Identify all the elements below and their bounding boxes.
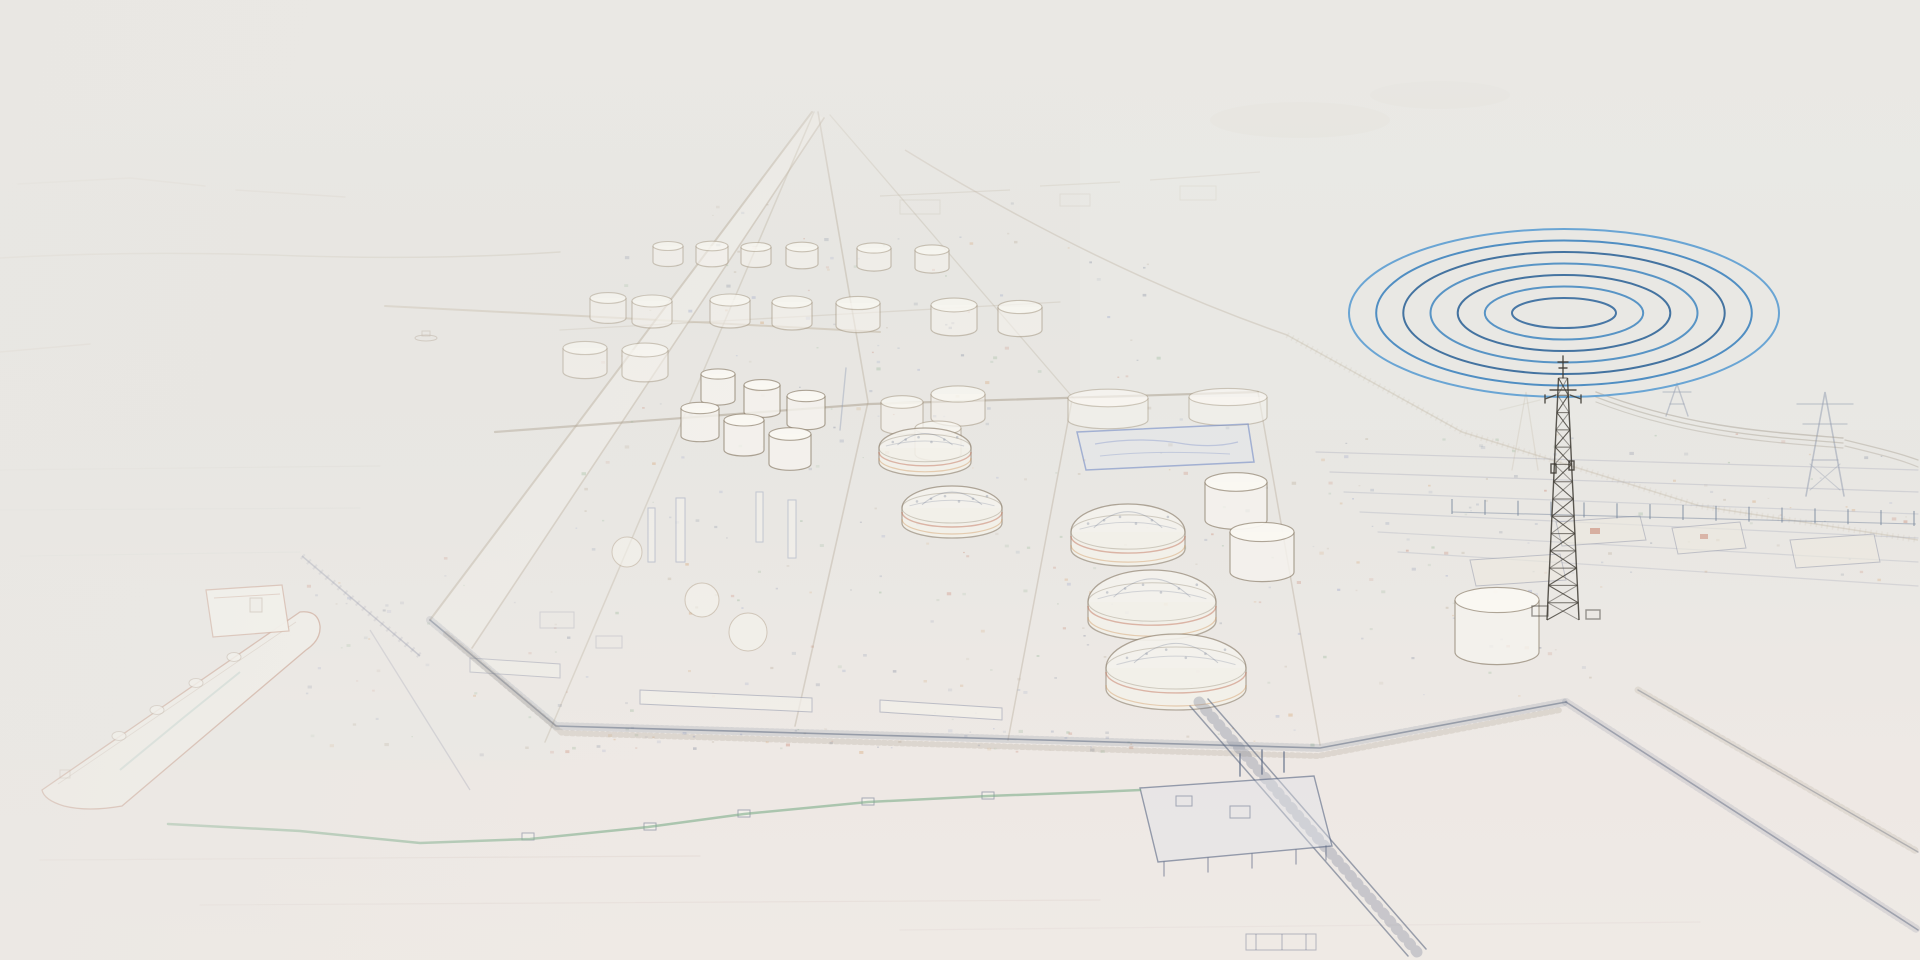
storage-tank-roof — [931, 386, 985, 402]
speckle — [1889, 502, 1892, 504]
speckle — [809, 468, 812, 470]
speckle — [833, 324, 835, 326]
speckle — [1254, 601, 1257, 603]
speckle — [1571, 437, 1573, 439]
dome-speckle — [1087, 522, 1090, 525]
speckle — [1027, 547, 1030, 549]
dome-speckle — [972, 497, 975, 500]
speckle — [877, 345, 879, 346]
speckle — [1259, 601, 1261, 603]
speckle — [1107, 316, 1110, 318]
speckle — [995, 533, 998, 535]
speckle — [1078, 473, 1081, 475]
speckle — [891, 747, 893, 748]
speckle — [1126, 375, 1129, 377]
speckle — [926, 543, 929, 545]
shed — [1672, 522, 1746, 554]
speckle — [1846, 506, 1848, 507]
speckle — [948, 689, 952, 692]
speckle — [1186, 736, 1189, 738]
speckle — [1105, 732, 1109, 735]
speckle — [1370, 489, 1374, 492]
speckle — [993, 728, 995, 729]
speckle — [1736, 433, 1739, 435]
speckle — [1254, 741, 1256, 742]
speckle — [1003, 731, 1006, 733]
speckle — [898, 238, 900, 239]
speckle — [1790, 507, 1792, 508]
speckle — [960, 685, 963, 687]
speckle — [1385, 522, 1389, 525]
speckle — [1710, 491, 1713, 493]
speckle — [1329, 493, 1332, 495]
speckle — [816, 465, 820, 468]
pier-head — [1140, 776, 1332, 862]
speckle — [1016, 551, 1020, 554]
speckle — [1582, 666, 1586, 669]
speckle — [1184, 472, 1188, 475]
speckle — [770, 667, 773, 669]
dome-speckle — [1196, 583, 1199, 586]
speckle — [1143, 267, 1146, 269]
speckle — [914, 303, 918, 306]
speckle — [1327, 548, 1329, 550]
speckle — [936, 599, 939, 601]
speckle — [1051, 731, 1054, 733]
speckle — [1601, 562, 1603, 564]
speckle — [1365, 438, 1368, 440]
speckle — [1600, 586, 1602, 588]
dome-speckle — [1119, 516, 1122, 519]
speckle — [1555, 649, 1557, 650]
dome-speckle — [1142, 583, 1145, 586]
speckle — [863, 457, 865, 458]
speckle — [1495, 439, 1498, 441]
dome-tank — [1106, 634, 1246, 710]
speckle — [1557, 434, 1559, 436]
speckle — [1465, 514, 1468, 516]
storage-tank-roof — [915, 245, 949, 255]
speckle — [897, 347, 899, 349]
storage-tank-roof — [786, 242, 818, 252]
speckle — [1488, 672, 1491, 674]
speckle — [816, 683, 820, 686]
speckle — [876, 367, 880, 370]
speckle — [1211, 533, 1214, 535]
speckle — [1820, 477, 1822, 478]
speckle — [1023, 590, 1027, 593]
speckle — [1428, 485, 1431, 487]
speckle — [1381, 590, 1385, 593]
dome-speckle — [943, 438, 946, 441]
speckle — [972, 467, 974, 468]
speckle — [1361, 638, 1363, 640]
speckle — [947, 592, 951, 595]
speckle — [1089, 261, 1092, 263]
speckle — [840, 440, 844, 443]
dome-speckle — [956, 436, 959, 439]
speckle — [924, 680, 928, 683]
speckle — [1288, 714, 1292, 717]
speckle — [1864, 456, 1868, 459]
speckle — [1572, 572, 1575, 574]
dome-speckle — [1126, 657, 1129, 660]
speckle — [875, 508, 877, 510]
storage-tank-roof — [1189, 388, 1267, 405]
shed — [1556, 516, 1646, 546]
speckle — [1723, 499, 1726, 501]
speckle — [993, 356, 997, 359]
speckle — [1130, 340, 1132, 341]
speckle — [877, 361, 880, 363]
dome-speckle — [1124, 587, 1127, 590]
speckle — [1750, 522, 1753, 524]
speckle — [1486, 478, 1488, 480]
left-haze — [0, 0, 760, 960]
speckle — [1017, 678, 1021, 681]
speckle — [776, 588, 778, 590]
dome-speckle — [930, 497, 933, 500]
lng-terminal-sketch — [0, 0, 1920, 960]
speckle — [1470, 510, 1472, 511]
speckle — [760, 322, 764, 325]
flare-stack — [840, 368, 846, 430]
speckle — [1222, 545, 1224, 546]
speckle — [1063, 627, 1066, 629]
dome-storage-tanks — [879, 428, 1246, 710]
speckle — [990, 669, 993, 671]
speckle — [1157, 357, 1161, 360]
speckle — [962, 593, 966, 595]
speckle — [1014, 241, 1018, 244]
speckle — [1117, 377, 1119, 378]
speckle — [1407, 538, 1410, 540]
tower-base-shed — [1586, 610, 1600, 619]
speckle — [987, 407, 991, 410]
dome-tank — [879, 428, 971, 476]
speckle — [1017, 689, 1020, 691]
speckle — [872, 352, 874, 353]
speckle — [1204, 539, 1207, 541]
speckle — [1860, 571, 1863, 573]
speckle — [1452, 615, 1454, 616]
storage-tank-roof — [787, 390, 825, 401]
speckle — [826, 266, 829, 268]
speckle — [1411, 657, 1414, 659]
speckle — [1019, 730, 1023, 733]
speckle — [1269, 587, 1271, 589]
speckle — [963, 552, 965, 553]
speckle — [931, 620, 934, 622]
shed — [1790, 534, 1880, 568]
dome-tank — [902, 486, 1002, 538]
speckle — [917, 369, 920, 371]
storage-tank-roof — [769, 428, 811, 441]
speckle — [880, 575, 882, 577]
speckle — [1097, 278, 1101, 281]
speckle — [1406, 550, 1409, 552]
dome-speckle — [944, 495, 947, 498]
speckle — [1000, 294, 1003, 296]
fence-line — [1452, 499, 1916, 526]
speckle — [786, 744, 790, 747]
speckle — [1655, 435, 1657, 437]
speckle — [824, 238, 828, 241]
dome-speckle — [1103, 519, 1106, 522]
speckle — [1544, 490, 1547, 492]
speckle — [1412, 568, 1416, 571]
dome-tank — [1071, 504, 1185, 566]
speckle — [966, 555, 969, 557]
speckle — [1469, 507, 1472, 509]
speckle — [859, 751, 863, 754]
speckle — [1313, 546, 1315, 547]
speckle — [1345, 443, 1347, 444]
speckle — [1684, 453, 1688, 456]
speckle — [970, 732, 972, 733]
shed — [1470, 554, 1566, 586]
speckle — [959, 237, 961, 238]
speckle — [966, 658, 969, 660]
speckle — [1369, 578, 1373, 581]
speckle — [1069, 732, 1073, 735]
speckle — [1877, 579, 1881, 582]
storage-tank-roof — [772, 296, 812, 308]
speckle — [799, 387, 801, 388]
speckle — [1429, 491, 1433, 494]
dome-tank — [1088, 570, 1216, 640]
speckle — [1065, 579, 1068, 581]
speckle — [1323, 656, 1327, 659]
speckle — [1055, 472, 1057, 473]
speckle — [886, 327, 888, 328]
speckle — [948, 729, 952, 732]
speckle — [1809, 454, 1811, 455]
speckle — [856, 407, 860, 410]
speckle — [850, 589, 852, 590]
speckle — [1016, 751, 1019, 753]
speckle — [1143, 294, 1147, 297]
speckle — [1024, 478, 1027, 480]
speckle — [1169, 469, 1171, 470]
speckle — [1053, 567, 1056, 569]
speckle — [1768, 498, 1770, 499]
speckle — [1431, 546, 1434, 548]
speckle — [811, 646, 814, 648]
speckle — [1356, 590, 1358, 591]
storage-tank-roof — [1068, 389, 1148, 407]
storage-tank-roof — [998, 300, 1042, 313]
speckle — [869, 390, 872, 392]
speckle — [1372, 526, 1374, 527]
speckle — [1083, 635, 1085, 637]
speckle — [1294, 729, 1296, 731]
speckle — [878, 416, 880, 417]
speckle — [986, 423, 989, 425]
storage-tank-roof — [836, 296, 880, 309]
speckle — [877, 747, 879, 748]
dome-speckle — [1165, 648, 1168, 651]
storage-tank-roof — [1230, 522, 1294, 541]
speckle — [1444, 552, 1448, 555]
speckle — [809, 592, 812, 594]
speckle — [1319, 552, 1323, 555]
speckle — [1180, 418, 1183, 420]
speckle — [879, 592, 882, 594]
storage-tank-roof — [1455, 587, 1539, 612]
speckle — [1370, 628, 1373, 630]
storage-tank-roof — [881, 396, 923, 409]
dome-speckle — [904, 438, 907, 441]
speckle — [1297, 581, 1301, 584]
dome-speckle — [1135, 522, 1138, 525]
speckle — [882, 535, 886, 538]
speckle — [1057, 603, 1059, 604]
dome-speckle — [892, 441, 895, 444]
speckle — [1356, 561, 1359, 563]
speckle — [981, 630, 985, 633]
dome-speckle — [930, 441, 933, 444]
speckle — [1476, 504, 1479, 506]
speckle — [961, 354, 964, 356]
storage-tank-roof — [1205, 473, 1267, 492]
speckle — [803, 238, 805, 239]
speckle — [1344, 455, 1348, 458]
speckle — [1841, 574, 1844, 576]
speckle — [1629, 452, 1634, 455]
speckle — [833, 427, 835, 429]
speckle — [1340, 503, 1343, 505]
dome-speckle — [1106, 591, 1109, 594]
speckle — [863, 654, 867, 657]
speckle — [1608, 552, 1612, 555]
speckle — [1518, 695, 1521, 697]
speckle — [1298, 633, 1301, 635]
speckle — [1752, 500, 1756, 502]
speckle — [1093, 567, 1096, 569]
speckle — [1137, 360, 1139, 361]
speckle — [1638, 512, 1643, 515]
speckle — [1082, 627, 1084, 629]
speckle — [1904, 520, 1908, 523]
speckle — [1446, 607, 1449, 609]
speckle — [830, 257, 834, 260]
speckle — [831, 408, 833, 409]
speckle — [808, 290, 810, 291]
speckle — [1514, 475, 1518, 478]
speckle — [1428, 564, 1431, 566]
speckle — [1442, 438, 1445, 440]
speckle — [838, 665, 842, 668]
speckle — [1650, 542, 1652, 543]
speckle — [1777, 544, 1780, 546]
speckle — [842, 670, 845, 672]
speckle — [1589, 677, 1592, 679]
sketch-scene — [0, 0, 1920, 960]
speckle — [827, 269, 830, 271]
speckle — [1352, 498, 1354, 499]
speckle — [1060, 536, 1063, 538]
speckle — [817, 347, 819, 348]
dome-speckle — [916, 500, 919, 503]
speckle — [1630, 572, 1632, 573]
speckle — [952, 719, 954, 720]
speckle — [1728, 462, 1730, 463]
speckle — [1267, 682, 1270, 684]
process-column — [788, 500, 796, 558]
speckle — [1220, 622, 1223, 624]
speckle — [1499, 531, 1502, 533]
dome-speckle — [1151, 519, 1154, 522]
speckle — [1811, 478, 1813, 480]
speckle — [1087, 644, 1089, 646]
dome-speckle — [1185, 657, 1188, 660]
speckle — [1673, 480, 1676, 482]
speckle — [1068, 247, 1070, 248]
storage-tank-roof — [931, 298, 977, 312]
speckle — [1453, 603, 1455, 604]
speckle — [990, 361, 993, 363]
speckle — [1276, 715, 1280, 718]
speckle — [1067, 583, 1071, 586]
speckle — [1292, 482, 1296, 485]
speckle — [1359, 485, 1361, 486]
speckle — [996, 477, 999, 479]
speckle — [1007, 233, 1009, 235]
speckle — [1528, 542, 1530, 543]
speckle — [1218, 734, 1220, 735]
speckle — [1038, 370, 1042, 373]
dome-speckle — [1167, 516, 1170, 519]
dome-speckle — [1160, 591, 1163, 594]
speckle — [1005, 545, 1009, 548]
speckle — [1337, 589, 1340, 591]
speckle — [1379, 682, 1383, 685]
dome-speckle — [917, 436, 920, 439]
speckle — [1892, 517, 1897, 520]
speckle — [893, 670, 897, 673]
speckle — [787, 565, 790, 567]
dome-speckle — [958, 500, 961, 503]
speckle — [1037, 655, 1040, 657]
speckle — [780, 748, 782, 750]
speckle — [1479, 444, 1483, 447]
speckle — [1054, 677, 1057, 679]
speckle — [1023, 691, 1027, 694]
speckle — [970, 242, 974, 245]
fence-rail — [1452, 512, 1916, 524]
dome-speckle — [1204, 652, 1207, 655]
speckle — [985, 381, 989, 384]
speckle — [1905, 516, 1907, 517]
dome-speckle — [1224, 648, 1227, 651]
speckle — [1104, 656, 1107, 658]
speckle — [1147, 264, 1149, 266]
storage-tank-roof — [857, 243, 891, 253]
speckle — [860, 522, 862, 523]
speckle — [1329, 482, 1333, 485]
speckle — [1285, 666, 1288, 668]
speckle — [1548, 652, 1552, 655]
speckle — [945, 275, 947, 276]
speckle — [820, 544, 824, 547]
speckle — [1535, 523, 1538, 525]
dome-speckle — [1145, 652, 1148, 655]
speckle — [1462, 552, 1465, 554]
red-container — [1700, 534, 1708, 539]
speckle — [1005, 347, 1009, 350]
red-container — [1590, 528, 1600, 534]
